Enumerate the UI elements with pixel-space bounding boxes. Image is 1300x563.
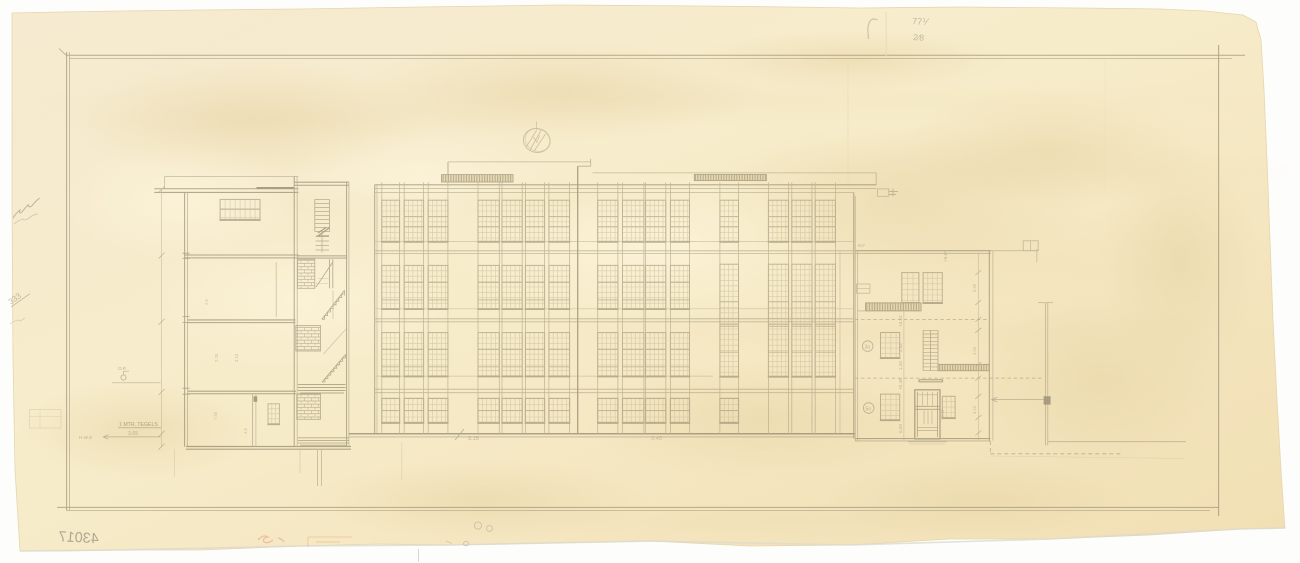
svg-text:1.20: 1.20 xyxy=(898,361,903,370)
svg-text:O.P.: O.P. xyxy=(118,366,127,371)
svg-text:3.45: 3.45 xyxy=(651,436,662,442)
svg-text:5o: 5o xyxy=(866,407,872,413)
svg-text:H.W.S: H.W.S xyxy=(79,435,92,440)
svg-text:3.50: 3.50 xyxy=(972,346,977,355)
svg-text:+9.47: +9.47 xyxy=(943,250,948,262)
svg-text:3a: 3a xyxy=(865,345,871,351)
svg-text:+3.52: +3.52 xyxy=(898,315,903,327)
svg-text:+0.48: +0.48 xyxy=(898,378,903,390)
svg-text:2.25: 2.25 xyxy=(214,353,219,362)
svg-text:3.10: 3.10 xyxy=(234,353,239,362)
svg-text:43017: 43017 xyxy=(58,529,99,547)
svg-text:77⅟: 77⅟ xyxy=(912,16,930,27)
svg-text:7.50: 7.50 xyxy=(213,411,218,420)
svg-text:1 MTR. TEGELS: 1 MTR. TEGELS xyxy=(119,422,158,428)
svg-text:947: 947 xyxy=(858,243,866,248)
svg-text:2⁄8: 2⁄8 xyxy=(913,32,925,43)
svg-text:3.10: 3.10 xyxy=(972,405,977,414)
svg-text:0.00: 0.00 xyxy=(898,424,903,433)
svg-text:3.15: 3.15 xyxy=(468,436,479,442)
svg-text:3.20: 3.20 xyxy=(972,283,977,292)
svg-text:+0.15: +0.15 xyxy=(940,409,945,420)
svg-text:4.5: 4.5 xyxy=(243,428,248,434)
svg-text:2.5: 2.5 xyxy=(204,299,209,305)
svg-text:2.52: 2.52 xyxy=(898,343,903,352)
svg-text:3.65: 3.65 xyxy=(128,431,138,437)
